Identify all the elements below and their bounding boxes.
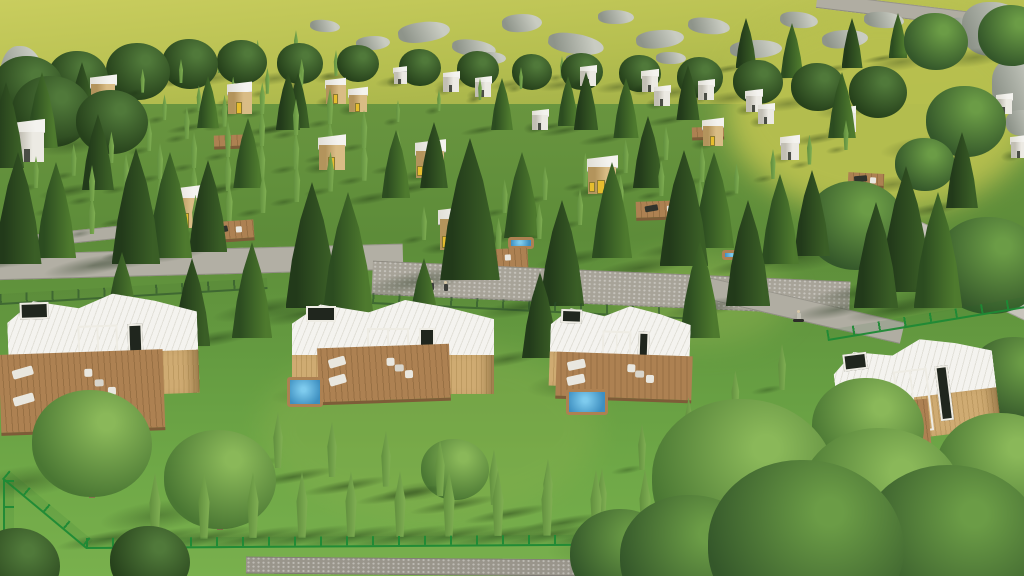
plunge-pool	[566, 389, 608, 415]
patio-table	[635, 370, 644, 377]
tiny-cabin	[532, 111, 548, 130]
plunge-pool	[287, 377, 323, 407]
sun-lounger	[12, 392, 35, 407]
cabin-door	[333, 94, 338, 104]
cabin-door	[660, 99, 663, 106]
patio-chair	[405, 370, 413, 378]
patio-chair	[386, 358, 394, 366]
person-body	[444, 284, 448, 291]
cabin-door	[449, 85, 452, 92]
sun-lounger	[328, 374, 347, 387]
tiny-cabin	[228, 85, 251, 114]
cabin-door	[24, 149, 30, 162]
clerestory-window	[842, 352, 868, 371]
cabin-window	[589, 182, 595, 193]
aerial-resort-scene	[0, 0, 1024, 576]
bushy-tree	[904, 13, 968, 70]
pedestrian	[443, 281, 448, 293]
bushy-tree	[32, 390, 152, 497]
tiny-cabin	[443, 73, 459, 92]
sun-lounger	[567, 358, 586, 370]
patio-chair	[84, 369, 92, 377]
sun-lounger	[327, 355, 346, 368]
cabin-door	[355, 103, 360, 112]
sun-lounger	[12, 365, 35, 380]
tiny-cabin	[654, 87, 670, 106]
cabin-door	[752, 105, 755, 112]
patio-table	[95, 379, 104, 386]
cabin-door	[788, 152, 792, 160]
cabin-door	[710, 136, 715, 146]
wooden-deck	[317, 344, 451, 406]
clerestory-window	[20, 302, 49, 320]
bushy-tree	[849, 66, 907, 118]
tiny-cabin	[1011, 137, 1024, 158]
tiny-cabin	[758, 105, 774, 124]
clerestory-window	[561, 309, 582, 324]
tiny-cabin	[394, 68, 407, 84]
cabin-door	[236, 102, 242, 114]
cabin-door	[648, 85, 651, 92]
rock-outcrop	[598, 10, 634, 24]
patio-chair	[235, 226, 241, 232]
bushy-tree	[164, 430, 276, 530]
sun-lounger	[566, 373, 585, 385]
patio-chair	[505, 255, 511, 261]
cabin-door	[1017, 151, 1020, 158]
cabin-door	[398, 79, 401, 84]
bicycle	[793, 319, 804, 322]
cabin-door	[704, 93, 707, 100]
cabin-door	[764, 117, 767, 124]
rock-outcrop	[656, 52, 686, 64]
patio-chair	[646, 375, 654, 383]
patio-chair	[627, 364, 635, 372]
patio-table	[394, 365, 403, 372]
cabin-door	[538, 123, 541, 130]
tiny-cabin	[781, 138, 799, 160]
tiny-cabin	[703, 120, 724, 146]
bushy-tree	[337, 45, 379, 82]
sun-lounger	[644, 204, 658, 212]
cyclist	[796, 310, 801, 322]
tiny-cabin	[698, 81, 714, 100]
tiny-cabin	[349, 90, 367, 112]
clerestory-window	[306, 306, 336, 322]
